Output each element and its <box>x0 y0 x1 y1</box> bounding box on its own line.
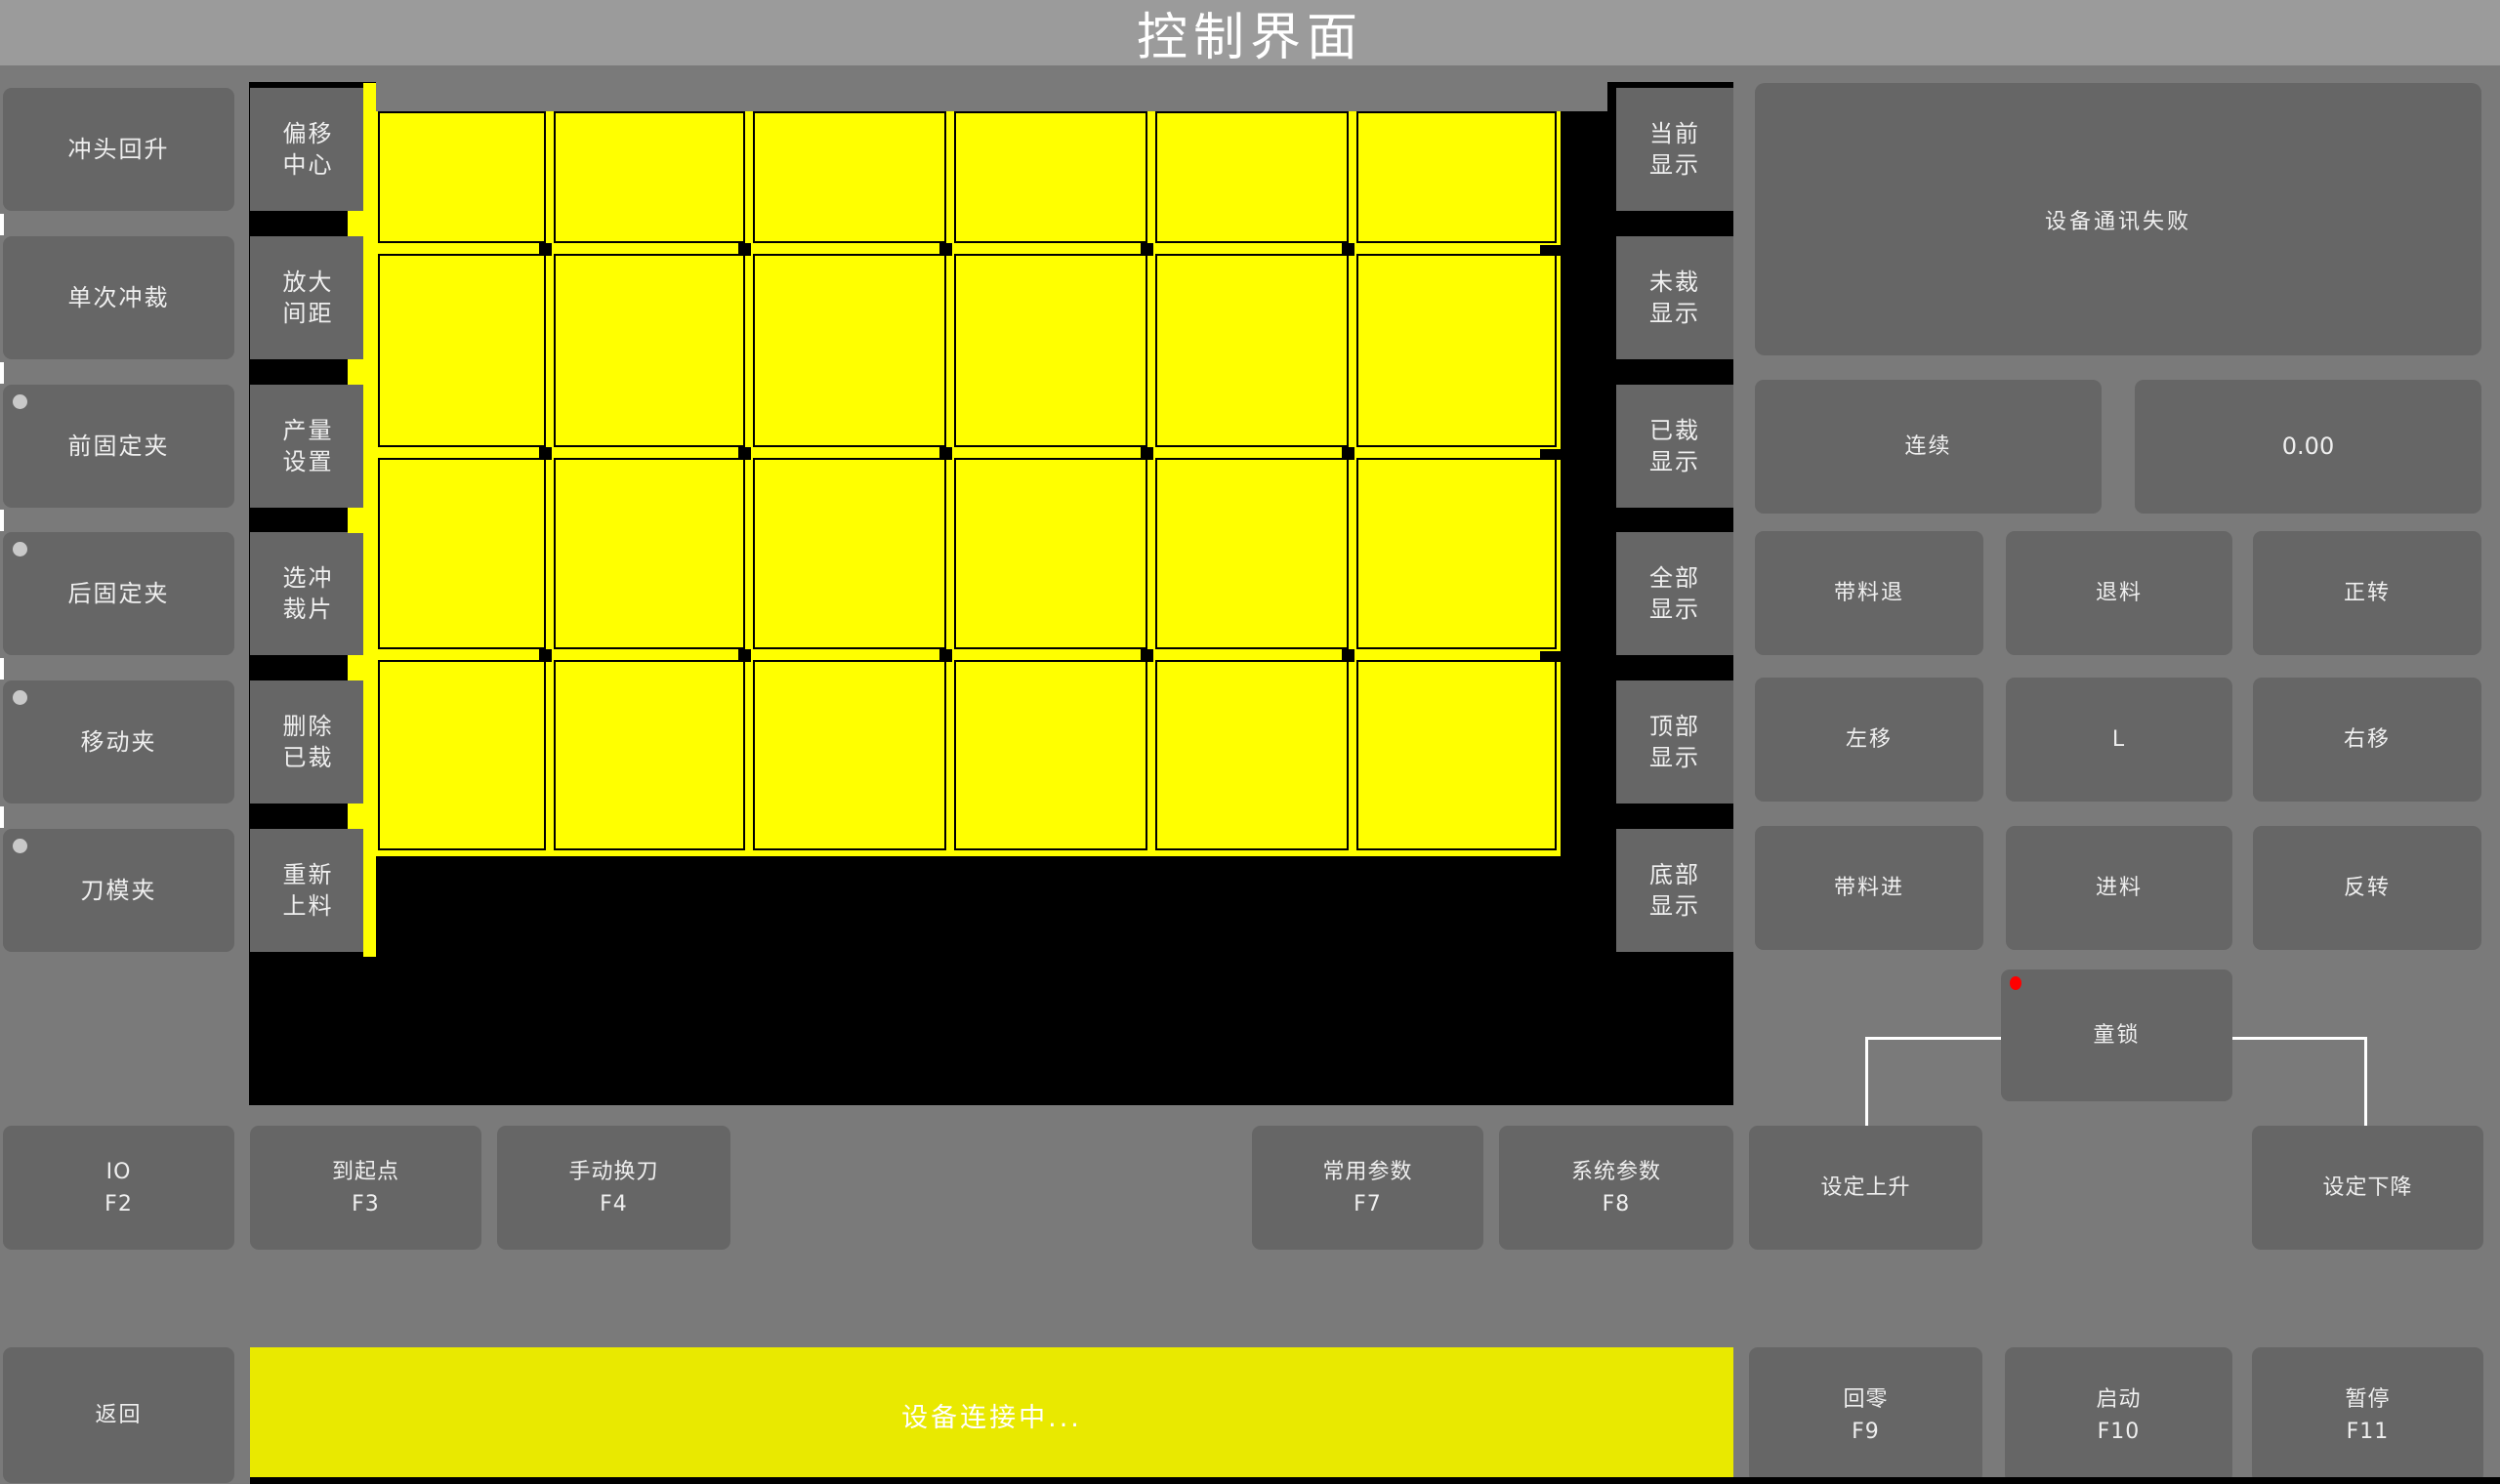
edge-tick <box>0 658 4 680</box>
bottom-edge-line <box>250 1477 2500 1484</box>
top-display-button[interactable]: 顶部 显示 <box>1616 680 1733 804</box>
start-f10-button[interactable]: 启动F10 <box>2005 1347 2232 1483</box>
cut-piece[interactable] <box>753 660 946 850</box>
all-display-button[interactable]: 全部 显示 <box>1616 532 1733 655</box>
indicator-dot <box>13 542 27 556</box>
cut-piece[interactable] <box>378 660 546 850</box>
move-right-button[interactable]: 右移 <box>2253 678 2481 802</box>
connection-status-bar: 设备连接中... <box>250 1347 1733 1483</box>
child-lock-button[interactable]: 童锁 <box>2001 969 2232 1101</box>
punch-notch <box>939 243 952 256</box>
current-display-button[interactable]: 当前 显示 <box>1616 88 1733 211</box>
cut-piece[interactable] <box>954 111 1147 243</box>
value-display[interactable]: 0.00 <box>2135 380 2481 514</box>
punch-notch <box>1342 243 1354 256</box>
edge-tick <box>0 214 4 235</box>
punch-notch <box>539 243 552 256</box>
indicator-dot <box>13 394 27 409</box>
feed-material-button[interactable]: 进料 <box>2006 826 2232 950</box>
cut-piece[interactable] <box>378 458 546 649</box>
indicator-dot <box>13 690 27 705</box>
cut-piece[interactable] <box>554 111 745 243</box>
cut-piece[interactable] <box>1155 254 1349 447</box>
punch-notch <box>1141 649 1153 662</box>
punch-notch <box>539 447 552 460</box>
return-material-button[interactable]: 退料 <box>2006 531 2232 655</box>
enlarge-spacing-button[interactable]: 放大 间距 <box>250 236 366 359</box>
cut-piece[interactable] <box>554 458 745 649</box>
edge-tick <box>0 362 4 384</box>
punch-raise-button[interactable]: 冲头回升 <box>3 88 234 211</box>
cut-piece[interactable] <box>753 111 946 243</box>
cut-piece[interactable] <box>1356 111 1557 243</box>
punch-notch <box>738 243 751 256</box>
punch-notch <box>1141 243 1153 256</box>
die-clamp-button[interactable]: 刀模夹 <box>3 829 234 952</box>
l-button[interactable]: L <box>2006 678 2232 802</box>
edge-tick <box>0 806 4 828</box>
cut-piece[interactable] <box>554 254 745 447</box>
cut-piece[interactable] <box>1356 254 1557 447</box>
cut-piece[interactable] <box>1356 660 1557 850</box>
output-settings-button[interactable]: 产量 设置 <box>250 385 366 508</box>
alarm-dot-icon <box>2010 976 2021 990</box>
system-params-f8-button[interactable]: 系统参数F8 <box>1499 1126 1733 1250</box>
forward-rotate-button[interactable]: 正转 <box>2253 531 2481 655</box>
select-piece-button[interactable]: 选冲 裁片 <box>250 532 366 655</box>
continuous-mode-button[interactable]: 连续 <box>1755 380 2102 514</box>
cut-piece[interactable] <box>1155 458 1349 649</box>
cut-piece[interactable] <box>378 254 546 447</box>
reload-material-button[interactable]: 重新 上料 <box>250 829 366 952</box>
back-button[interactable]: 返回 <box>3 1347 234 1483</box>
edge-tick <box>0 510 4 531</box>
link-line-left <box>1865 1037 1868 1127</box>
cut-piece[interactable] <box>753 458 946 649</box>
cut-piece[interactable] <box>1356 458 1557 649</box>
bottom-display-button[interactable]: 底部 显示 <box>1616 829 1733 952</box>
cut-piece[interactable] <box>1155 660 1349 850</box>
cut-piece[interactable] <box>954 458 1147 649</box>
to-origin-f3-button[interactable]: 到起点F3 <box>250 1126 481 1250</box>
gutter-end-notch <box>1540 651 1561 662</box>
punch-notch <box>1342 649 1354 662</box>
set-fall-button[interactable]: 设定下降 <box>2252 1126 2483 1250</box>
punch-notch <box>1141 447 1153 460</box>
cut-piece[interactable] <box>954 660 1147 850</box>
set-rise-button[interactable]: 设定上升 <box>1749 1126 1982 1250</box>
link-line-right <box>2364 1037 2367 1127</box>
feed-back-button[interactable]: 带料退 <box>1755 531 1983 655</box>
page-title: 控制界面 <box>1137 0 1363 69</box>
connection-status-text: 设备连接中... <box>901 1396 1082 1434</box>
cut-piece[interactable] <box>378 111 546 243</box>
front-fixed-clamp-button[interactable]: 前固定夹 <box>3 385 234 508</box>
punch-notch <box>939 649 952 662</box>
comm-status-panel: 设备通讯失败 <box>1755 83 2481 355</box>
reverse-rotate-button[interactable]: 反转 <box>2253 826 2481 950</box>
gutter-end-notch <box>1540 449 1561 460</box>
cut-piece[interactable] <box>954 254 1147 447</box>
common-params-f7-button[interactable]: 常用参数F7 <box>1252 1126 1483 1250</box>
uncut-display-button[interactable]: 未裁 显示 <box>1616 236 1733 359</box>
gutter-end-notch <box>1540 245 1561 256</box>
feed-forward-button[interactable]: 带料进 <box>1755 826 1983 950</box>
offset-center-button[interactable]: 偏移 中心 <box>250 88 366 211</box>
rear-fixed-clamp-button[interactable]: 后固定夹 <box>3 532 234 655</box>
cut-piece[interactable] <box>1155 111 1349 243</box>
cut-display-button[interactable]: 已裁 显示 <box>1616 385 1733 508</box>
punch-notch <box>738 649 751 662</box>
canvas-top-margin <box>376 82 1607 111</box>
cut-piece[interactable] <box>554 660 745 850</box>
indicator-dot <box>13 839 27 853</box>
move-left-button[interactable]: 左移 <box>1755 678 1983 802</box>
single-punch-button[interactable]: 单次冲裁 <box>3 236 234 359</box>
material-edge-strip <box>363 83 376 957</box>
io-f2-button[interactable]: IOF2 <box>3 1126 234 1250</box>
delete-cut-button[interactable]: 删除 已裁 <box>250 680 366 804</box>
cut-piece[interactable] <box>753 254 946 447</box>
comm-status-text: 设备通讯失败 <box>2045 204 2191 235</box>
moving-clamp-button[interactable]: 移动夹 <box>3 680 234 804</box>
title-bar: 控制界面 <box>0 0 2500 65</box>
home-f9-button[interactable]: 回零F9 <box>1749 1347 1982 1483</box>
punch-notch <box>539 649 552 662</box>
pause-f11-button[interactable]: 暂停F11 <box>2252 1347 2483 1483</box>
punch-notch <box>939 447 952 460</box>
punch-notch <box>1342 447 1354 460</box>
manual-tool-change-f4-button[interactable]: 手动换刀F4 <box>497 1126 730 1250</box>
punch-notch <box>738 447 751 460</box>
